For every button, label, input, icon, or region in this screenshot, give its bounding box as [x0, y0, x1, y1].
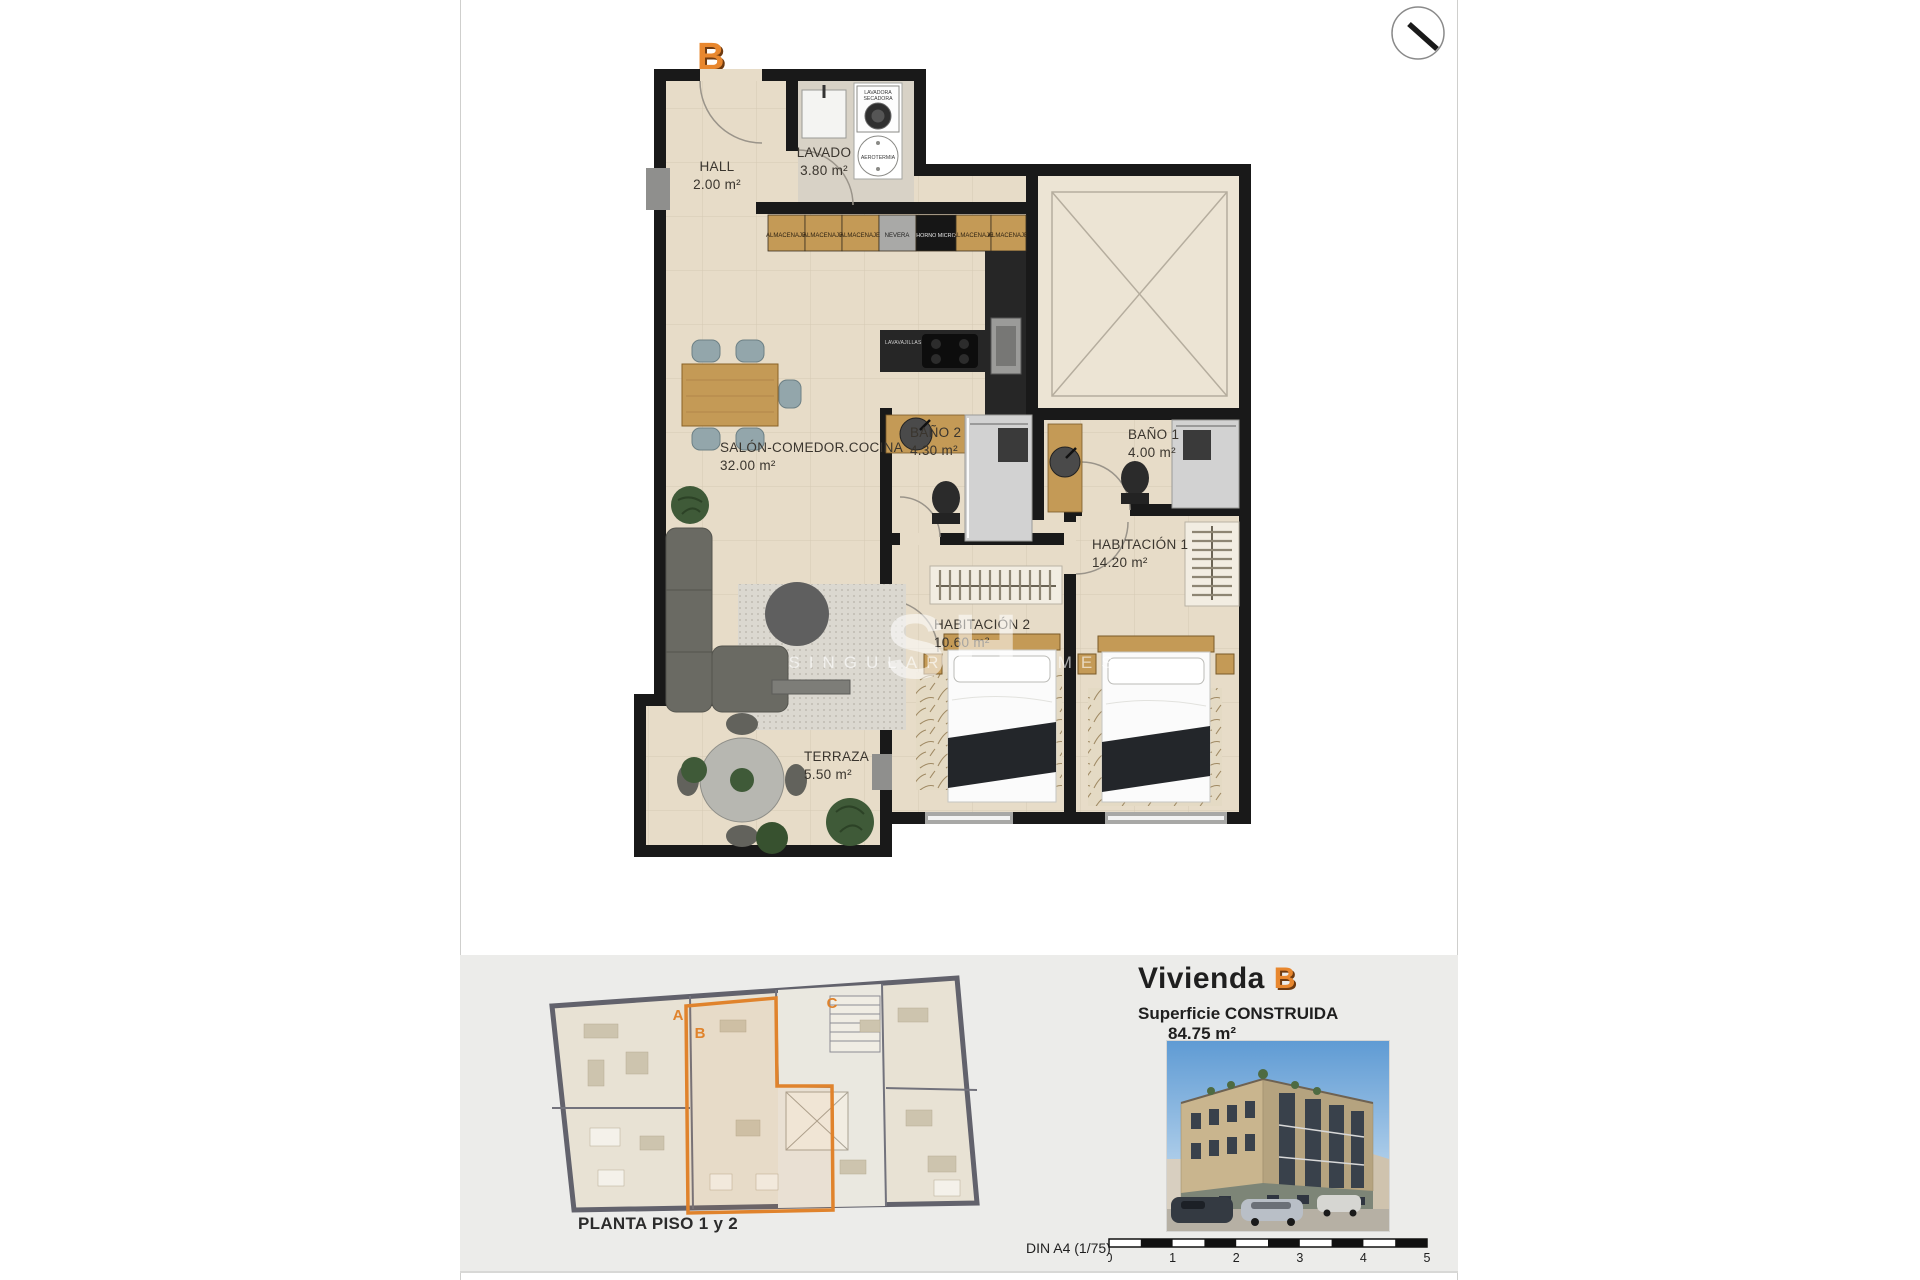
bed1-side-table-right [1216, 654, 1234, 674]
bedroom1-window [1105, 812, 1227, 824]
scale-label: DIN A4 (1/75) [1026, 1240, 1111, 1256]
svg-text:4: 4 [1360, 1251, 1367, 1265]
dishwasher-label: LAVAVAJILLAS [885, 340, 922, 346]
info-panel: A B C PLANTA PISO 1 y 2 Vivienda B Super… [460, 955, 1458, 1273]
tv-bench [772, 680, 850, 694]
cooktop-icon [922, 334, 978, 368]
overview-caption: PLANTA PISO 1 y 2 [578, 1214, 738, 1234]
bath1-toilet-icon [1121, 461, 1149, 504]
washer-label-2: SECADORA [863, 96, 893, 102]
room-label-living: SALÓN-COMEDOR.COCINA [720, 440, 903, 455]
room-label-bath1: BAÑO 1 [1128, 427, 1179, 442]
floor-plan-page: B [0, 0, 1920, 1280]
dwelling-label: Vivienda [1138, 962, 1265, 995]
cabinet-label: ALMACENAJE [840, 233, 880, 239]
fridge-label: NEVERA [885, 233, 910, 239]
unit-a-letter: A [673, 1007, 684, 1024]
bedroom2-window [925, 812, 1013, 824]
svg-text:4.30 m²: 4.30 m² [910, 443, 958, 458]
svg-text:5.50 m²: 5.50 m² [804, 767, 852, 782]
svg-text:2: 2 [1233, 1251, 1240, 1265]
north-arrow-icon [1392, 7, 1444, 59]
svg-text:32.00 m²: 32.00 m² [720, 458, 776, 473]
unit-c-letter: C [827, 995, 838, 1012]
cabinet-label: ALMACENAJE [988, 233, 1028, 239]
surface-label: Superficie CONSTRUIDA [1138, 1004, 1338, 1023]
heat-pump-label: AEROTERMIA [861, 155, 896, 161]
svg-text:0: 0 [1108, 1251, 1113, 1265]
svg-text:5: 5 [1424, 1251, 1431, 1265]
svg-text:3.80 m²: 3.80 m² [800, 163, 848, 178]
bath2-shower [965, 415, 1032, 541]
heat-pump-icon: AEROTERMIA [858, 136, 898, 176]
round-rug [765, 582, 829, 646]
room-label-bath2: BAÑO 2 [910, 425, 961, 440]
bath2-toilet-icon [932, 481, 960, 524]
svg-text:4.00 m²: 4.00 m² [1128, 445, 1176, 460]
room-label-bedroom1: HABITACIÓN 1 [1092, 537, 1188, 552]
dining-table [682, 364, 778, 426]
unit-b-letter: B [695, 1025, 706, 1042]
oven-label: HORNO MICRO [916, 233, 956, 239]
room-label-hall: HALL [700, 159, 735, 174]
svg-text:14.20 m²: 14.20 m² [1092, 555, 1148, 570]
cabinet-label: ALMACENAJE [803, 233, 843, 239]
bath1-shower [1172, 420, 1239, 508]
wall-box-left [646, 168, 670, 210]
watermark-initials: SH [885, 596, 1025, 698]
scale-bar: 0 1 2 3 4 5 [1108, 1236, 1434, 1266]
cabinet-label: ALMACENAJE [766, 233, 806, 239]
watermark-name: SINGULARITY HOMES [788, 653, 1121, 672]
building-overview-plan: A B C [530, 960, 990, 1222]
svg-text:1: 1 [1169, 1251, 1176, 1265]
wall-box-terrace [872, 754, 892, 790]
room-label-laundry: LAVADO [797, 145, 852, 160]
washer-dryer-icon: LAVADORA SECADORA [857, 86, 899, 132]
bath1-sink-icon [1050, 447, 1080, 477]
bed1-closet [1185, 522, 1239, 606]
surface-line: Superficie CONSTRUIDA 84.75 m² [1138, 1004, 1398, 1044]
svg-text:3: 3 [1296, 1251, 1303, 1265]
room-label-terrace: TERRAZA [804, 749, 869, 764]
entrance-opening [700, 69, 762, 81]
svg-text:2.00 m²: 2.00 m² [693, 177, 741, 192]
building-photo [1166, 1040, 1390, 1232]
dwelling-letter: B [1274, 962, 1296, 995]
plant-icon [671, 486, 709, 524]
dwelling-title: Vivienda B [1138, 962, 1296, 996]
